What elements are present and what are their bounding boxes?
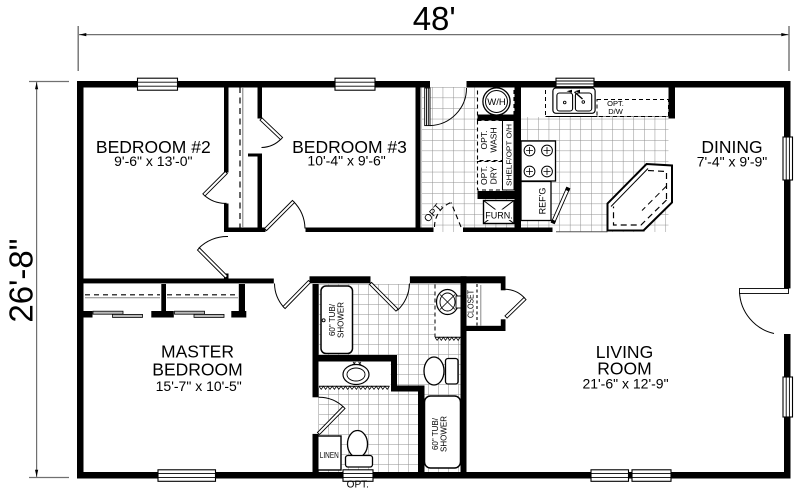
svg-text:SHOWER: SHOWER (439, 416, 448, 452)
svg-text:CLOSET: CLOSET (467, 290, 476, 318)
svg-text:MASTER: MASTER (161, 342, 234, 362)
svg-text:SHOWER: SHOWER (336, 302, 345, 338)
svg-text:26'-8": 26'-8" (2, 239, 39, 323)
svg-text:BEDROOM: BEDROOM (152, 360, 242, 380)
svg-text:SHELF/OPT O/H: SHELF/OPT O/H (505, 124, 514, 186)
svg-text:OPT.: OPT. (479, 166, 489, 185)
svg-text:9'-6" x 13'-0": 9'-6" x 13'-0" (114, 153, 192, 169)
svg-text:OPT.: OPT. (347, 479, 369, 489)
svg-text:48': 48' (413, 0, 456, 37)
svg-text:OPT.: OPT. (479, 131, 489, 150)
svg-text:21'-6" x 12'-9": 21'-6" x 12'-9" (582, 376, 668, 392)
svg-text:DRY: DRY (489, 166, 499, 184)
svg-text:WASH: WASH (489, 127, 499, 152)
svg-text:LINEN: LINEN (320, 450, 339, 460)
svg-text:10'-4" x 9'-6": 10'-4" x 9'-6" (307, 153, 385, 169)
svg-text:FURN.: FURN. (485, 211, 513, 221)
svg-text:15'-7" x 10'-5": 15'-7" x 10'-5" (156, 378, 242, 394)
svg-text:D/W: D/W (608, 107, 624, 116)
svg-text:REF'G: REF'G (538, 188, 548, 215)
svg-text:W/H: W/H (487, 97, 506, 108)
svg-text:7'-4" x 9'-9": 7'-4" x 9'-9" (697, 154, 768, 170)
